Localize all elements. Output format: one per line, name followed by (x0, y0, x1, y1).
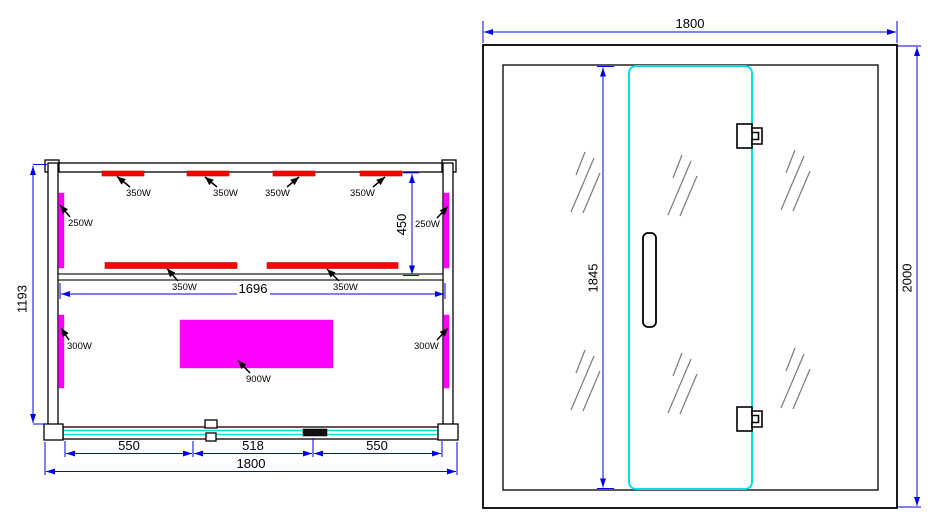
heater-350w-bar (267, 263, 398, 269)
heater-350w-bar (360, 171, 402, 176)
dim-label: 1696 (239, 281, 268, 296)
heater-250w-bar (59, 193, 65, 268)
door-hinge-bottom (737, 407, 762, 431)
dim-label: 1845 (586, 264, 601, 293)
plan-bench-edge (58, 274, 443, 280)
plan-door-lock (303, 429, 327, 436)
heater-350w-bar (102, 171, 144, 176)
dim-width-1800-front: 1800 (483, 16, 897, 43)
cad-drawing-canvas: 350W 350W 350W 350W 250W 250W 350W 350W … (0, 0, 952, 532)
door-handle (643, 233, 656, 327)
heater-900w-plate (180, 320, 333, 368)
heater-label: 350W (172, 282, 197, 293)
dim-label: 450 (394, 214, 409, 236)
heater-350w-bar (187, 171, 229, 176)
dim-label: 518 (242, 438, 264, 453)
heater-label: 300W (414, 341, 439, 352)
dim-label: 1193 (15, 285, 30, 313)
front-view: 1800 1845 2000 (483, 16, 921, 508)
heater-label: 900W (246, 374, 271, 385)
heater-250w-bar (444, 193, 450, 268)
plan-view: 350W 350W 350W 350W 250W 250W 350W 350W … (15, 160, 459, 475)
heater-350w-bar (105, 263, 237, 269)
dim-inner-width-1696: 1696 (60, 281, 445, 299)
door-hinge-top (737, 124, 762, 148)
sauna-technical-drawing: 350W 350W 350W 350W 250W 250W 350W 350W … (0, 0, 952, 532)
plan-door-handle (205, 420, 217, 428)
heater-label: 300W (67, 341, 92, 352)
dim-height-2000: 2000 (898, 46, 921, 507)
heater-label: 250W (415, 219, 440, 230)
leader-arrow (373, 177, 385, 187)
plan-left-wall (48, 163, 58, 425)
heater-label: 350W (126, 188, 151, 199)
heater-label: 350W (350, 188, 375, 199)
heater-label: 350W (333, 282, 358, 293)
heater-350w-bar (273, 171, 315, 176)
dim-depth-1193: 1193 (15, 165, 48, 425)
plan-corner-cap-bl (44, 424, 63, 440)
dim-label: 1800 (237, 456, 266, 471)
dim-front-segments: 550 518 550 (65, 438, 442, 457)
dim-label: 550 (366, 438, 388, 453)
plan-back-wall (48, 163, 453, 172)
heater-label: 350W (265, 188, 290, 199)
heater-label: 350W (213, 188, 238, 199)
leader-arrow (117, 177, 130, 188)
plan-door-handle (206, 433, 216, 441)
dim-label: 550 (118, 438, 140, 453)
heater-300w-bar (444, 315, 450, 388)
heater-label: 250W (68, 218, 93, 229)
dim-label: 1800 (676, 16, 705, 31)
plan-corner-cap-br (438, 424, 458, 440)
leader-arrow (287, 177, 299, 187)
leader-arrow (205, 177, 217, 187)
heater-300w-bar (59, 315, 65, 388)
dim-label: 2000 (900, 264, 915, 293)
